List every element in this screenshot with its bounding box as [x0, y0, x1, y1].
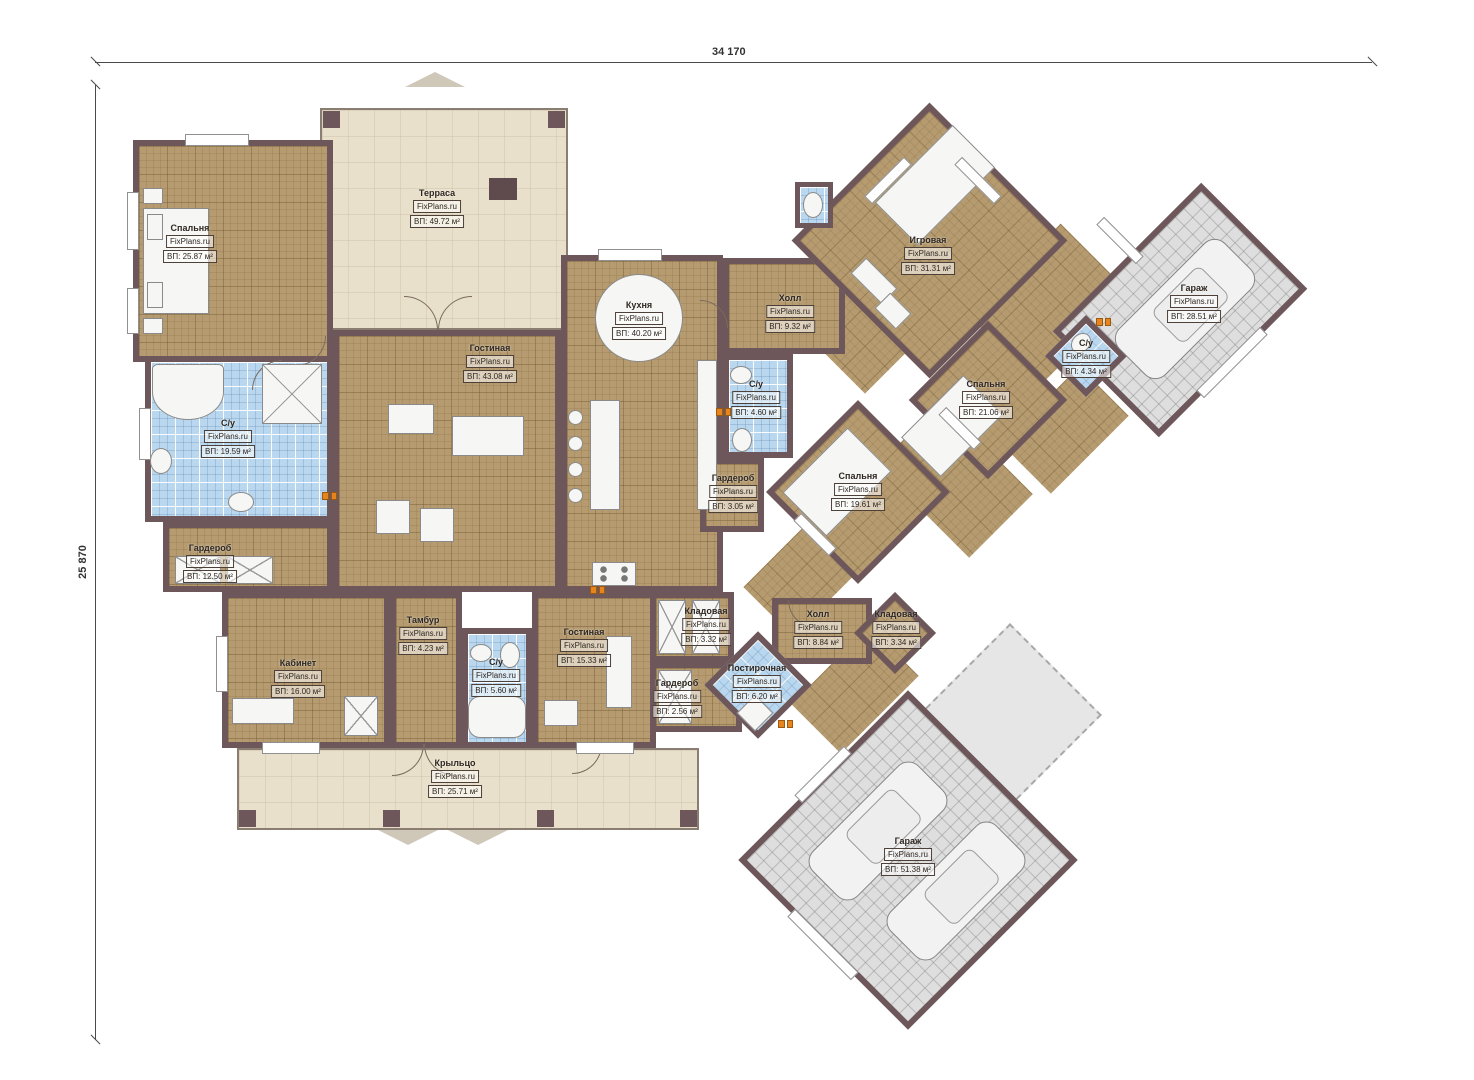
stool	[568, 462, 583, 477]
room-name: Игровая	[910, 235, 947, 245]
watermark: FixPlans.ru	[682, 618, 730, 631]
room-area: ВП: 15.33 м²	[557, 654, 611, 667]
room-label-living: Гостиная FixPlans.ru ВП: 43.08 м²	[463, 343, 517, 383]
room-label-game: Игровая FixPlans.ru ВП: 31.31 м²	[901, 235, 955, 275]
window	[1096, 217, 1143, 264]
room-label-bath-left: С/у FixPlans.ru ВП: 19.59 м²	[201, 418, 255, 458]
vent-icon	[322, 492, 337, 500]
sink-icon	[803, 192, 823, 218]
porch-steps	[378, 830, 438, 845]
room-area: ВП: 31.31 м²	[901, 262, 955, 275]
room-area: ВП: 3.32 м²	[681, 633, 731, 646]
porch-steps	[448, 830, 508, 845]
room-name: Спальня	[967, 379, 1006, 389]
watermark: FixPlans.ru	[732, 391, 780, 404]
vent-icon	[778, 720, 793, 728]
room-name: Тамбур	[407, 615, 440, 625]
watermark: FixPlans.ru	[834, 483, 882, 496]
room-area: ВП: 28.51 м²	[1167, 310, 1221, 323]
room-label-hall-lower: Холл FixPlans.ru ВП: 8.84 м²	[793, 609, 843, 649]
room-name: Гардероб	[656, 678, 699, 688]
room-name: Холл	[779, 293, 802, 303]
porch-column	[239, 810, 256, 827]
room-label-kitchen: Кухня FixPlans.ru ВП: 40.20 м²	[612, 300, 666, 340]
room-label-tambour: Тамбур FixPlans.ru ВП: 4.23 м²	[398, 615, 448, 655]
room-label-bedroom-right: Спальня FixPlans.ru ВП: 21.06 м²	[959, 379, 1013, 419]
room-name: С/у	[1079, 338, 1093, 348]
watermark: FixPlans.ru	[709, 485, 757, 498]
watermark: FixPlans.ru	[560, 639, 608, 652]
room-label-porch: Крыльцо FixPlans.ru ВП: 25.71 м²	[428, 758, 482, 798]
dimension-left-label: 25 870	[77, 545, 89, 579]
window	[576, 742, 634, 754]
room-label-wardrobe-mid: Гардероб FixPlans.ru ВП: 3.05 м²	[708, 473, 758, 513]
room-area: ВП: 51.38 м²	[881, 863, 935, 876]
room-area: ВП: 3.34 м²	[871, 636, 921, 649]
room-area: ВП: 4.34 м²	[1061, 365, 1111, 378]
watermark: FixPlans.ru	[733, 675, 781, 688]
window	[127, 288, 139, 334]
room-name: Гардероб	[712, 473, 755, 483]
room-name: Спальня	[839, 471, 878, 481]
room-name: Гостиная	[564, 627, 605, 637]
watermark: FixPlans.ru	[766, 305, 814, 318]
watermark: FixPlans.ru	[204, 430, 252, 443]
room-name: Терраса	[419, 188, 455, 198]
room-name: Кладовая	[874, 609, 917, 619]
room-label-office: Кабинет FixPlans.ru ВП: 16.00 м²	[271, 658, 325, 698]
porch-column	[383, 810, 400, 827]
room-area: ВП: 6.20 м²	[732, 690, 782, 703]
room-name: Холл	[807, 609, 830, 619]
bathtub	[152, 364, 224, 420]
room-area: ВП: 12.50 м²	[183, 570, 237, 583]
watermark: FixPlans.ru	[615, 312, 663, 325]
armchair	[376, 500, 410, 534]
bathtub	[468, 696, 526, 738]
window	[598, 249, 662, 261]
window	[262, 742, 320, 754]
watermark: FixPlans.ru	[904, 247, 952, 260]
sofa	[452, 416, 524, 456]
room-label-wc-mid: С/у FixPlans.ru ВП: 4.60 м²	[731, 379, 781, 419]
room-label-garage-top: Гараж FixPlans.ru ВП: 28.51 м²	[1167, 283, 1221, 323]
vent-icon	[1096, 318, 1111, 326]
nightstand	[143, 188, 163, 204]
room-label-bedroom-tl: Спальня FixPlans.ru ВП: 25.87 м²	[163, 223, 217, 263]
room-label-living-2: Гостиная FixPlans.ru ВП: 15.33 м²	[557, 627, 611, 667]
watermark: FixPlans.ru	[166, 235, 214, 248]
room-area: ВП: 2.56 м²	[652, 705, 702, 718]
room-label-wardrobe-left: Гардероб FixPlans.ru ВП: 12.50 м²	[183, 543, 237, 583]
room-label-pantry-2: Кладовая FixPlans.ru ВП: 3.34 м²	[871, 609, 921, 649]
watermark: FixPlans.ru	[186, 555, 234, 568]
stool	[568, 436, 583, 451]
room-name: С/у	[749, 379, 763, 389]
terrace-steps	[405, 72, 465, 87]
room-area: ВП: 5.60 м²	[471, 684, 521, 697]
room-label-wc-right: С/у FixPlans.ru ВП: 4.34 м²	[1061, 338, 1111, 378]
room-name: Крыльцо	[435, 758, 476, 768]
watermark: FixPlans.ru	[872, 621, 920, 634]
sofa	[388, 404, 434, 434]
floor-plan-canvas: 34 170 25 870	[0, 0, 1474, 1080]
watermark: FixPlans.ru	[1170, 295, 1218, 308]
room-name: Гардероб	[189, 543, 232, 553]
room-name: Гараж	[1181, 283, 1208, 293]
watermark: FixPlans.ru	[413, 200, 461, 213]
stove-icon	[592, 562, 636, 586]
watermark: FixPlans.ru	[466, 355, 514, 368]
watermark: FixPlans.ru	[274, 670, 322, 683]
room-label-hall-upper: Холл FixPlans.ru ВП: 9.32 м²	[765, 293, 815, 333]
toilet-icon	[732, 428, 752, 452]
room-label-pantry-1: Кладовая FixPlans.ru ВП: 3.32 м²	[681, 606, 731, 646]
room-area: ВП: 8.84 м²	[793, 636, 843, 649]
room-label-garage-bottom: Гараж FixPlans.ru ВП: 51.38 м²	[881, 836, 935, 876]
dimension-line-left	[95, 85, 96, 1040]
chimney-block	[489, 178, 517, 200]
room-name: Спальня	[171, 223, 210, 233]
room-label-terrace: Терраса FixPlans.ru ВП: 49.72 м²	[410, 188, 464, 228]
terrace-column	[548, 111, 565, 128]
room-name: Постирочная	[728, 663, 786, 673]
vent-icon	[716, 408, 731, 416]
window	[139, 408, 151, 460]
room-area: ВП: 21.06 м²	[959, 406, 1013, 419]
shower-cabin	[262, 364, 322, 424]
room-name: Кабинет	[280, 658, 316, 668]
room-area: ВП: 4.60 м²	[731, 406, 781, 419]
room-label-bedroom-center: Спальня FixPlans.ru ВП: 19.61 м²	[831, 471, 885, 511]
coffee-table	[420, 508, 454, 542]
window	[216, 636, 228, 692]
terrace-column	[323, 111, 340, 128]
room-name: Гараж	[895, 836, 922, 846]
room-area: ВП: 40.20 м²	[612, 327, 666, 340]
toilet-icon	[150, 448, 172, 474]
room-area: ВП: 49.72 м²	[410, 215, 464, 228]
room-label-wardrobe-bottom: Гардероб FixPlans.ru ВП: 2.56 м²	[652, 678, 702, 718]
nightstand	[143, 318, 163, 334]
room-area: ВП: 19.59 м²	[201, 445, 255, 458]
room-area: ВП: 25.71 м²	[428, 785, 482, 798]
room-name: Кухня	[626, 300, 652, 310]
room-name: Кладовая	[684, 606, 727, 616]
room-area: ВП: 16.00 м²	[271, 685, 325, 698]
room-living	[333, 330, 561, 592]
room-area: ВП: 25.87 м²	[163, 250, 217, 263]
dimension-line-top	[95, 62, 1372, 63]
room-label-laundry: Постирочная FixPlans.ru ВП: 6.20 м²	[728, 663, 786, 703]
room-area: ВП: 4.23 м²	[398, 642, 448, 655]
stool	[568, 488, 583, 503]
room-name: С/у	[489, 657, 503, 667]
porch-column	[537, 810, 554, 827]
room-area: ВП: 3.05 м²	[708, 500, 758, 513]
kitchen-island	[590, 400, 620, 510]
room-name: Гостиная	[470, 343, 511, 353]
watermark: FixPlans.ru	[884, 848, 932, 861]
dimension-top-label: 34 170	[712, 46, 746, 58]
watermark: FixPlans.ru	[431, 770, 479, 783]
watermark: FixPlans.ru	[1062, 350, 1110, 363]
armchair	[544, 700, 578, 726]
room-area: ВП: 43.08 м²	[463, 370, 517, 383]
room-area: ВП: 19.61 м²	[831, 498, 885, 511]
desk	[232, 698, 294, 724]
stool	[568, 410, 583, 425]
window	[185, 134, 249, 146]
watermark: FixPlans.ru	[472, 669, 520, 682]
watermark: FixPlans.ru	[962, 391, 1010, 404]
room-label-wc-bottom: С/у FixPlans.ru ВП: 5.60 м²	[471, 657, 521, 697]
room-area: ВП: 9.32 м²	[765, 320, 815, 333]
watermark: FixPlans.ru	[794, 621, 842, 634]
watermark: FixPlans.ru	[653, 690, 701, 703]
vent-icon	[590, 586, 605, 594]
bed-pillow	[147, 282, 163, 308]
watermark: FixPlans.ru	[399, 627, 447, 640]
bed-pillow	[147, 214, 163, 240]
wardrobe-unit	[344, 696, 378, 736]
porch-column	[680, 810, 697, 827]
window	[127, 192, 139, 250]
room-name: С/у	[221, 418, 235, 428]
sink-icon	[228, 492, 254, 512]
